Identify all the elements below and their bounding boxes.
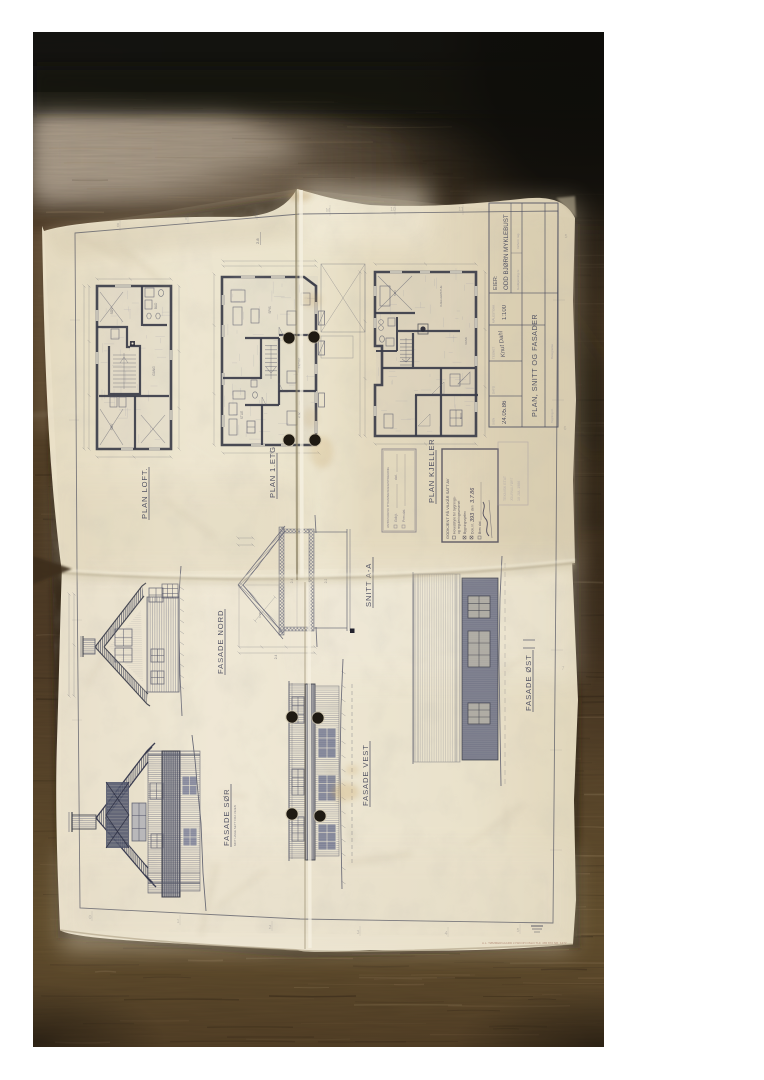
svg-text:ANTIKVARISK BYGNINGSREGISTRERI: ANTIKVARISK BYGNINGSREGISTRERING	[386, 466, 390, 528]
svg-text:2: 2	[269, 925, 272, 931]
svg-text:ODD BJØRN MYKLEBUST: ODD BJØRN MYKLEBUST	[503, 214, 510, 290]
svg-text:2.8: 2.8	[255, 238, 260, 244]
svg-text:1: 1	[177, 919, 180, 925]
svg-text:5: 5	[517, 928, 520, 934]
svg-text:SIGN: SIGN	[492, 418, 496, 425]
svg-text:Tegning nr.: Tegning nr.	[550, 408, 554, 423]
svg-text:GODKJENT PÅ VILKÅR SATT AV: GODKJENT PÅ VILKÅR SATT AV	[445, 478, 450, 539]
svg-text:393: 393	[470, 512, 476, 522]
svg-text:3: 3	[357, 930, 360, 936]
svg-text:BAD: BAD	[154, 302, 158, 309]
svg-text:Betegnelse: Betegnelse	[550, 344, 554, 359]
svg-text:Hovedstyre for bygnings-: Hovedstyre for bygnings-	[453, 496, 457, 534]
svg-text:Godkjenning nr.: Godkjenning nr.	[516, 269, 520, 290]
svg-text:1:35: 1:35	[258, 612, 262, 618]
svg-text:1:100: 1:100	[502, 304, 508, 320]
svg-text:MOT HAGE SETT FRA VEIEN: MOT HAGE SETT FRA VEIEN	[233, 805, 237, 846]
svg-text:KJELLERSTUE: KJELLERSTUE	[439, 285, 443, 306]
svg-text:GANG: GANG	[152, 366, 156, 376]
svg-text:PLAN LOFT.: PLAN LOFT.	[140, 467, 149, 519]
svg-text:Q: Q	[253, 212, 257, 218]
svg-text:Innført i reg.: Innført i reg.	[516, 233, 520, 249]
svg-text:den: den	[471, 505, 475, 511]
svg-text:7: 7	[562, 666, 565, 672]
svg-text:PLAN KJELLER: PLAN KJELLER	[427, 439, 436, 503]
svg-text:Dok.nr.: Dok.nr.	[471, 523, 475, 534]
svg-text:FASADE VEST: FASADE VEST	[361, 744, 370, 806]
svg-text:10: 10	[390, 207, 396, 213]
svg-text:SOV: SOV	[393, 290, 397, 296]
svg-text:0: 0	[89, 915, 92, 921]
svg-text:24.05.86: 24.05.86	[502, 400, 508, 424]
svg-text:PLAN, SNITT OG FASADER: PLAN, SNITT OG FASADER	[530, 314, 539, 417]
svg-text:EIER:: EIER:	[493, 275, 499, 290]
svg-text:5: 5	[565, 234, 568, 240]
svg-text:FASADE SØR: FASADE SØR	[222, 788, 231, 846]
svg-text:Brev dat.: Brev dat.	[478, 520, 482, 534]
svg-text:SOV: SOV	[110, 307, 114, 315]
svg-text:FASADE ØST: FASADE ØST	[524, 654, 533, 711]
svg-text:TEGNET: TEGNET	[492, 347, 496, 359]
svg-text:3.7.86: 3.7.86	[470, 487, 476, 503]
svg-text:SNITT A-A: SNITT A-A	[364, 563, 373, 607]
svg-text:Prev.dat.: Prev.dat.	[402, 509, 406, 522]
svg-text:SOV: SOV	[110, 423, 114, 431]
svg-text:TEKNISK ETAT: TEKNISK ETAT	[503, 475, 507, 501]
svg-text:PLAN 1.ETG: PLAN 1.ETG	[268, 446, 277, 498]
svg-text:MÅLESTOKK: MÅLESTOKK	[491, 305, 496, 323]
svg-text:M: M	[326, 208, 330, 214]
svg-text:Gdkjt.: Gdkjt.	[394, 513, 398, 522]
svg-text:STUE: STUE	[240, 411, 244, 420]
svg-text:JOURNALFØRT: JOURNALFØRT	[510, 477, 514, 501]
svg-text:og reguleringsvesenet: og reguleringsvesenet	[457, 501, 461, 534]
svg-text:Bygningssjefen: Bygningssjefen	[463, 511, 467, 534]
svg-text:2.4: 2.4	[274, 655, 278, 660]
svg-text:dat.: dat.	[394, 474, 398, 480]
svg-text:6: 6	[564, 426, 567, 432]
svg-text:DATO: DATO	[492, 385, 496, 394]
svg-text:BOD: BOD	[459, 412, 463, 419]
svg-text:10 JUL 1986: 10 JUL 1986	[517, 481, 521, 501]
svg-text:11: 11	[458, 207, 463, 213]
svg-text:SPIS: SPIS	[268, 306, 272, 313]
svg-text:8: 8	[117, 223, 120, 229]
svg-text:4: 4	[445, 931, 448, 937]
svg-text:VASK: VASK	[464, 337, 468, 345]
